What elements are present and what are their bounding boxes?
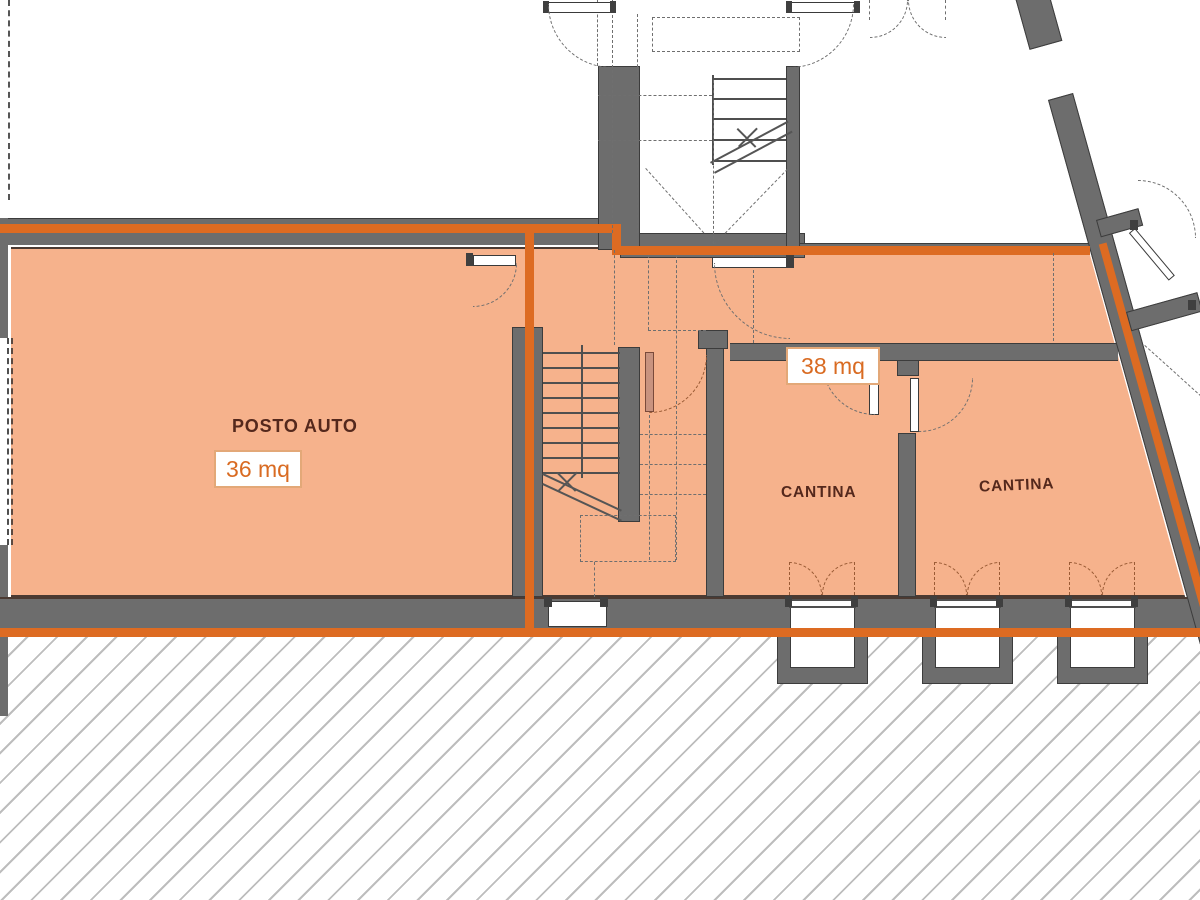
window-jamb bbox=[851, 596, 858, 607]
stair-tread bbox=[712, 98, 786, 100]
projection-dash-box bbox=[652, 17, 800, 52]
wall-stair-right bbox=[706, 332, 724, 597]
window-jamb bbox=[600, 597, 608, 607]
floor-plan-canvas: POSTO AUTO 36 mq 38 mq CANTINA CANTINA bbox=[0, 0, 1200, 900]
window-sill-line bbox=[934, 606, 1001, 608]
door-hinge bbox=[466, 253, 473, 266]
door-hinge bbox=[854, 1, 860, 13]
projection-dash bbox=[598, 140, 712, 141]
room-label-posto-auto: POSTO AUTO bbox=[232, 416, 358, 437]
wall-left-upper bbox=[0, 218, 8, 338]
ground-hatch bbox=[0, 636, 1200, 900]
door-leaf-dashed bbox=[1134, 562, 1135, 595]
garage-opening-dash bbox=[7, 338, 9, 545]
door-leaf-dashed bbox=[1069, 562, 1070, 595]
door-leaf-dashed bbox=[934, 562, 935, 595]
wall-cantina-top-notch bbox=[897, 361, 919, 376]
area-badge-36: 36 mq bbox=[214, 450, 302, 488]
door-leaf-dashed bbox=[854, 562, 855, 595]
stair-break-line bbox=[714, 131, 792, 174]
projection-dash-box bbox=[580, 515, 676, 562]
garage-opening-dash bbox=[11, 338, 13, 545]
projection-dash bbox=[640, 464, 706, 465]
projection-dash bbox=[640, 434, 706, 435]
area-badge-38: 38 mq bbox=[786, 347, 880, 385]
door-arc bbox=[548, 4, 612, 68]
window-sill-line bbox=[789, 599, 856, 601]
window-jamb bbox=[1065, 596, 1072, 607]
window-sill-line bbox=[1069, 606, 1136, 608]
projection-dash bbox=[612, 0, 613, 233]
boundary-orange-divider bbox=[525, 224, 534, 636]
projection-dash bbox=[648, 255, 649, 330]
window-jamb bbox=[544, 597, 552, 607]
wall-stairwell-left bbox=[598, 66, 640, 250]
double-door-arc bbox=[908, 0, 946, 38]
door-hinge bbox=[1130, 220, 1138, 230]
projection-dash bbox=[648, 330, 706, 331]
wall-stairwell-right bbox=[786, 66, 800, 250]
projection-dash bbox=[676, 255, 677, 560]
stair-center-dash bbox=[713, 80, 714, 244]
door-leaf bbox=[910, 378, 919, 432]
stair-tread bbox=[712, 160, 786, 162]
double-door-leaf-dashed bbox=[945, 0, 946, 20]
double-door-leaf-dashed bbox=[869, 0, 870, 20]
door-leaf-dashed bbox=[789, 562, 790, 595]
wall-stair-center bbox=[618, 347, 640, 522]
projection-dash bbox=[614, 250, 615, 345]
window-jamb bbox=[785, 596, 792, 607]
door-arc bbox=[790, 4, 854, 68]
wall-stair-right-cap bbox=[698, 330, 728, 349]
window-jamb bbox=[1131, 596, 1138, 607]
stair-tread bbox=[712, 78, 786, 80]
boundary-dash-topleft bbox=[8, 0, 10, 200]
door-hinge bbox=[1188, 300, 1196, 310]
window-sill-line bbox=[1069, 599, 1136, 601]
boundary-orange-mid bbox=[612, 246, 1090, 255]
wall-cantina-divider bbox=[898, 433, 916, 597]
room-label-cantina-1: CANTINA bbox=[781, 484, 856, 502]
window-jamb bbox=[996, 596, 1003, 607]
boundary-orange-bottom bbox=[0, 628, 1200, 637]
window-sill-line bbox=[789, 606, 856, 608]
projection-dash bbox=[594, 562, 595, 597]
basement-window bbox=[548, 601, 607, 627]
projection-dash bbox=[598, 95, 712, 96]
double-door-arc bbox=[870, 0, 908, 38]
projection-dash bbox=[640, 494, 706, 495]
door-leaf-dashed bbox=[999, 562, 1000, 595]
projection-dash bbox=[637, 14, 638, 233]
room-label-cantina-2: CANTINA bbox=[979, 475, 1055, 496]
stair-edge-line bbox=[581, 345, 583, 478]
projection-dash bbox=[1053, 253, 1054, 341]
stair-tread bbox=[712, 118, 786, 120]
window-sill-line bbox=[934, 599, 1001, 601]
window-jamb bbox=[930, 596, 937, 607]
